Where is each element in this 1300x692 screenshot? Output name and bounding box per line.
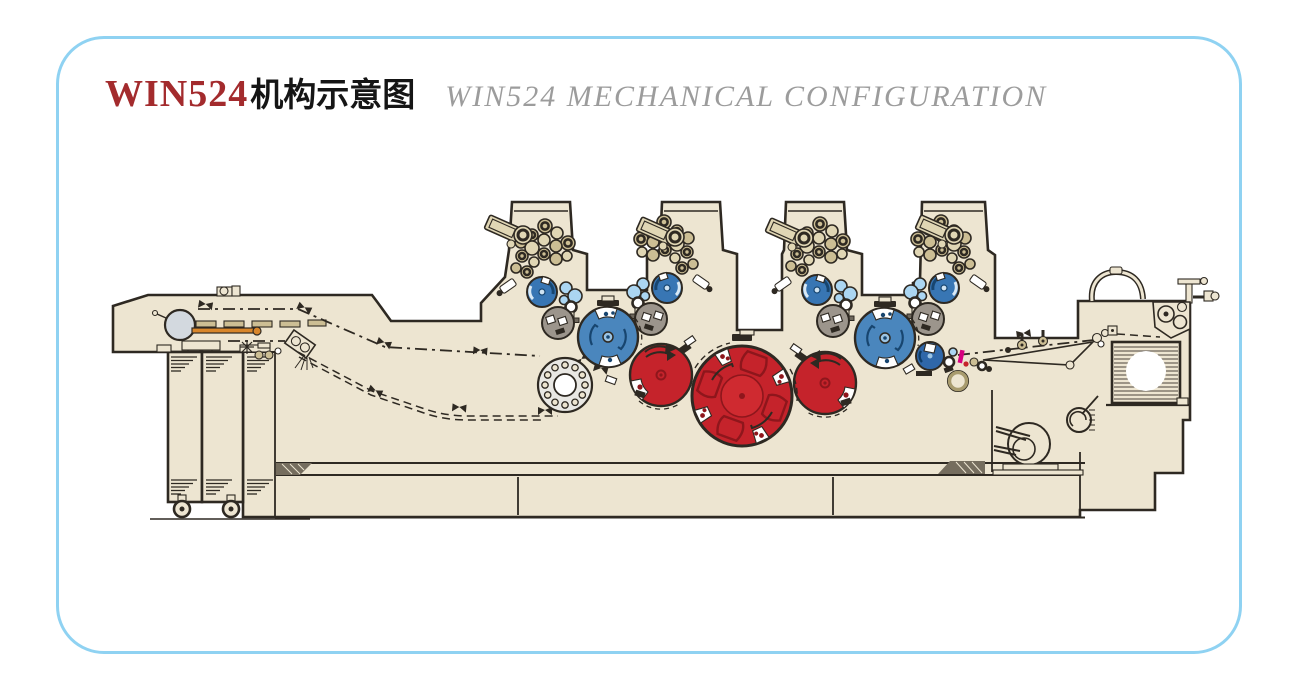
paper-roll (165, 310, 195, 340)
pipe-fittings (1178, 278, 1219, 304)
page: WIN524机构示意图WIN524 MECHANICAL CONFIGURATI… (0, 0, 1300, 692)
infeed-bar (192, 328, 254, 333)
infeed-bar-end (253, 327, 261, 335)
transfer-drum (538, 358, 592, 412)
press-diagram (0, 0, 1300, 692)
